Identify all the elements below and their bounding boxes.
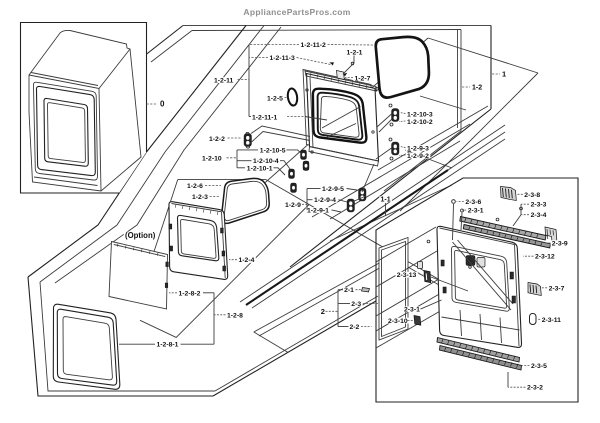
svg-text:2-3-10: 2-3-10 — [388, 318, 408, 325]
svg-text:AppliancePartsPros.com: AppliancePartsPros.com — [243, 7, 350, 17]
svg-text:1-2-9-1: 1-2-9-1 — [307, 207, 329, 214]
svg-text:2-3-13: 2-3-13 — [397, 272, 417, 279]
svg-text:1-2-9-4: 1-2-9-4 — [314, 197, 336, 204]
svg-text:2-2: 2-2 — [350, 324, 360, 331]
svg-text:2-3-2: 2-3-2 — [527, 385, 543, 392]
svg-text:1-2-10-1: 1-2-10-1 — [247, 165, 273, 172]
svg-text:1-2-1: 1-2-1 — [347, 49, 363, 56]
svg-text:2-1: 2-1 — [344, 287, 354, 294]
svg-text:1-2-10-4: 1-2-10-4 — [253, 158, 279, 165]
svg-text:2-3-11: 2-3-11 — [542, 317, 561, 324]
svg-text:2-3-4: 2-3-4 — [531, 212, 547, 219]
svg-text:2-3-5: 2-3-5 — [531, 363, 547, 370]
svg-text:1-2-10-2: 1-2-10-2 — [407, 119, 433, 126]
svg-text:2: 2 — [321, 307, 325, 316]
svg-text:1-2: 1-2 — [472, 84, 482, 91]
svg-text:2-3-3: 2-3-3 — [531, 202, 547, 209]
svg-text:1-2-9-2: 1-2-9-2 — [407, 153, 429, 160]
svg-text:1-2-9-3: 1-2-9-3 — [407, 145, 429, 152]
svg-text:1-2-7: 1-2-7 — [355, 75, 371, 82]
svg-text:1-2-11-2: 1-2-11-2 — [301, 42, 327, 49]
svg-text:1-2-8-1: 1-2-8-1 — [157, 342, 179, 349]
svg-text:2-3-8: 2-3-8 — [524, 192, 540, 199]
svg-text:1-2-2: 1-2-2 — [209, 136, 225, 143]
svg-text:1-2-11-1: 1-2-11-1 — [252, 114, 278, 121]
svg-text:2-3-9: 2-3-9 — [552, 241, 568, 248]
svg-text:2-3-1: 2-3-1 — [468, 208, 484, 215]
svg-text:1-2-5: 1-2-5 — [267, 95, 283, 102]
svg-text:1-2-9-5: 1-2-9-5 — [322, 186, 344, 193]
svg-text:1-2-11: 1-2-11 — [214, 77, 233, 84]
svg-text:2-3-7: 2-3-7 — [549, 285, 565, 292]
svg-text:1-2-3: 1-2-3 — [192, 194, 208, 201]
svg-text:1-2-6: 1-2-6 — [187, 183, 203, 190]
svg-text:1-2-10-3: 1-2-10-3 — [407, 111, 433, 118]
svg-text:2-3-6: 2-3-6 — [465, 199, 481, 206]
svg-text:2-3-1: 2-3-1 — [404, 307, 420, 314]
svg-text:1-2-4: 1-2-4 — [239, 257, 255, 264]
svg-text:1: 1 — [502, 69, 506, 78]
svg-text:1-2-10-5: 1-2-10-5 — [260, 147, 286, 154]
svg-text:1-2-8-2: 1-2-8-2 — [179, 290, 201, 297]
svg-text:1-2-9: 1-2-9 — [285, 202, 301, 209]
svg-text:(Option): (Option) — [125, 231, 156, 240]
svg-text:1-1: 1-1 — [381, 197, 391, 204]
svg-text:1-2-10: 1-2-10 — [202, 155, 222, 162]
svg-text:1-2-11-3: 1-2-11-3 — [270, 55, 296, 62]
svg-text:0: 0 — [160, 100, 165, 109]
svg-text:2-3: 2-3 — [351, 301, 361, 308]
svg-text:2-3-12: 2-3-12 — [535, 254, 555, 261]
svg-text:1-2-8: 1-2-8 — [227, 312, 243, 319]
